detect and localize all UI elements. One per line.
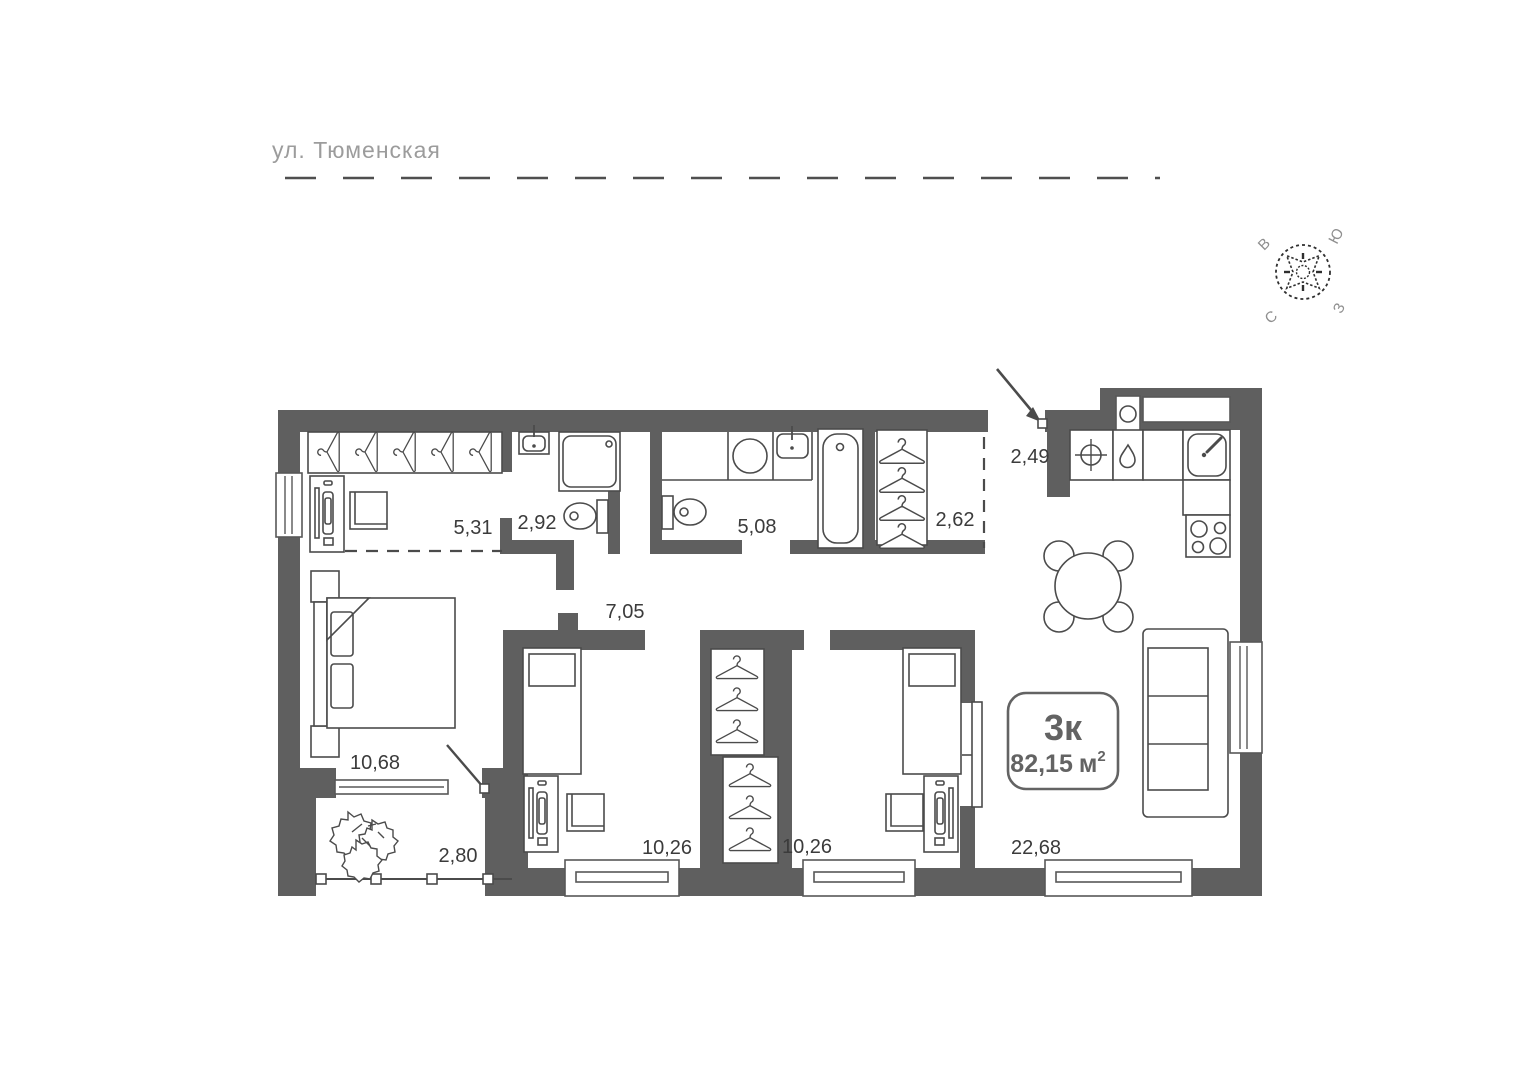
washing-machine-icon — [733, 439, 767, 473]
dining-table — [1044, 541, 1133, 632]
street-label: ул. Тюменская — [272, 137, 441, 163]
compass-north-label: С — [1262, 307, 1281, 327]
stool — [567, 794, 604, 831]
room-area-label: 7,05 — [606, 601, 645, 623]
headboard — [314, 602, 327, 726]
nightstand — [311, 726, 339, 757]
double-bed — [327, 598, 455, 728]
counter-cell — [1183, 480, 1230, 515]
floor-plan-page: ул. Тюменская В Ю С З — [0, 0, 1526, 1079]
closet — [877, 430, 927, 548]
window — [1143, 397, 1230, 422]
apartment-area: 82,15м2 — [1010, 748, 1105, 778]
compass-east-label: В — [1255, 235, 1274, 254]
window — [276, 473, 302, 537]
plant-icon — [330, 812, 398, 882]
single-bed — [523, 648, 581, 774]
door-leaf — [962, 702, 982, 807]
balcony — [330, 812, 398, 882]
sofa — [1143, 629, 1228, 817]
desk-with-pc — [524, 776, 558, 852]
entry-arrow — [997, 369, 1047, 428]
compass-rose: В Ю С З — [1255, 226, 1349, 328]
shower-icon — [559, 432, 620, 491]
room-area-label: 2,62 — [936, 509, 975, 531]
compass-west-label: З — [1330, 300, 1349, 316]
apartment-type: 3к — [1044, 707, 1083, 748]
room-area-label: 2,92 — [518, 512, 557, 534]
compass-south-label: Ю — [1325, 226, 1347, 247]
room-area-label: 5,31 — [454, 517, 493, 539]
desk-with-pc — [310, 476, 344, 552]
room-area-label: 5,08 — [738, 516, 777, 538]
single-bed — [903, 648, 961, 774]
cabinet — [350, 492, 387, 529]
counter-cell — [1143, 430, 1183, 480]
counter-cell — [1113, 430, 1143, 480]
window — [1230, 642, 1262, 753]
room-area-label: 10,68 — [350, 752, 400, 774]
stool — [886, 794, 923, 831]
desk-with-pc — [924, 776, 958, 852]
bathtub-icon — [818, 429, 863, 548]
floor-plan: ул. Тюменская В Ю С З — [0, 0, 1526, 1079]
apartment-badge: 3к 82,15м2 — [1008, 693, 1118, 789]
room-area-label: 22,68 — [1011, 837, 1061, 859]
stove-icon — [1186, 515, 1230, 557]
room-area-label: 2,80 — [439, 845, 478, 867]
bedroom-middle — [523, 648, 604, 852]
room-area-label: 10,26 — [782, 836, 832, 858]
room-area-label: 10,26 — [642, 837, 692, 859]
toilet-icon — [564, 500, 608, 533]
toilet-icon — [662, 496, 706, 529]
room-area-label: 2,49 — [1011, 446, 1050, 468]
balcony-glazing — [316, 874, 512, 884]
